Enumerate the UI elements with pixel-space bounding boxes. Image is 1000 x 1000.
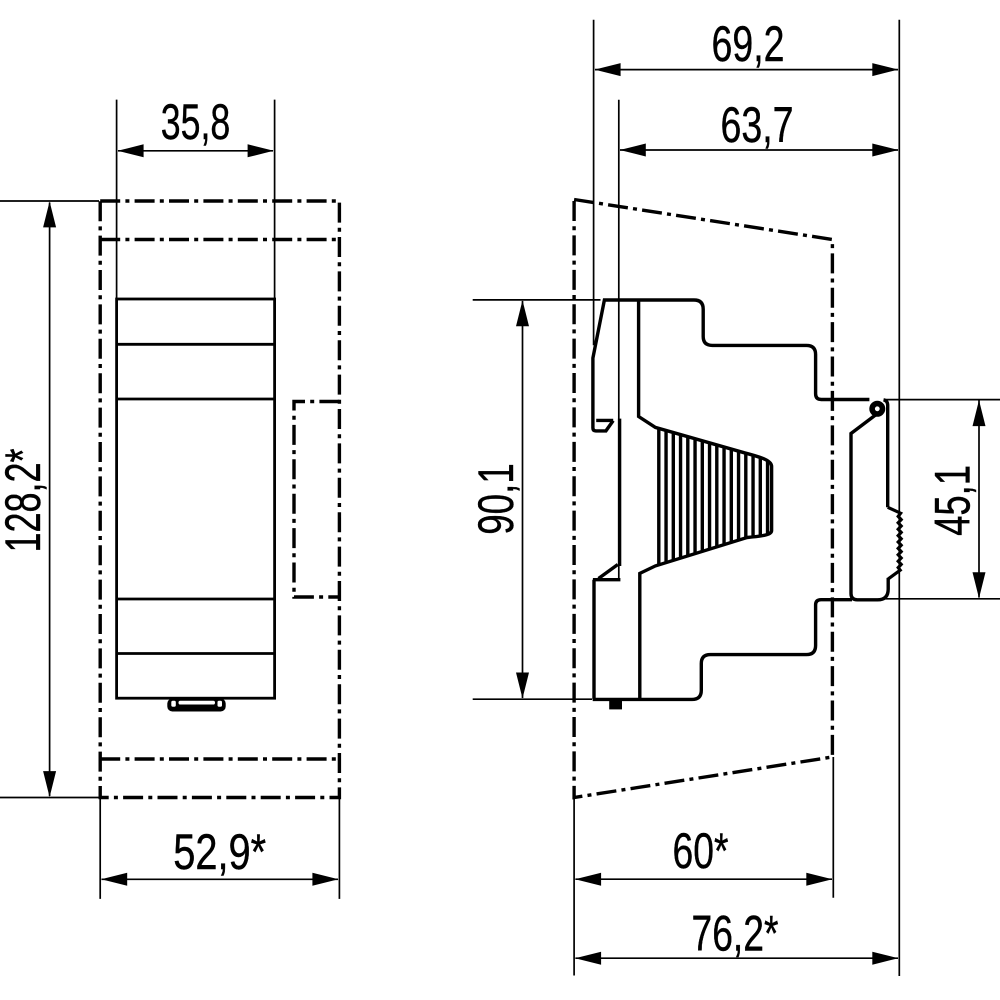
svg-text:35,8: 35,8 bbox=[161, 93, 231, 150]
svg-text:45,1: 45,1 bbox=[923, 465, 980, 536]
svg-text:63,7: 63,7 bbox=[721, 96, 794, 153]
svg-text:60*: 60* bbox=[673, 822, 729, 879]
svg-text:76,2*: 76,2* bbox=[692, 905, 779, 962]
svg-text:128,2*: 128,2* bbox=[0, 449, 51, 553]
svg-text:69,2: 69,2 bbox=[712, 15, 785, 72]
svg-text:52,9*: 52,9* bbox=[173, 823, 266, 880]
svg-text:90,1: 90,1 bbox=[467, 463, 524, 535]
